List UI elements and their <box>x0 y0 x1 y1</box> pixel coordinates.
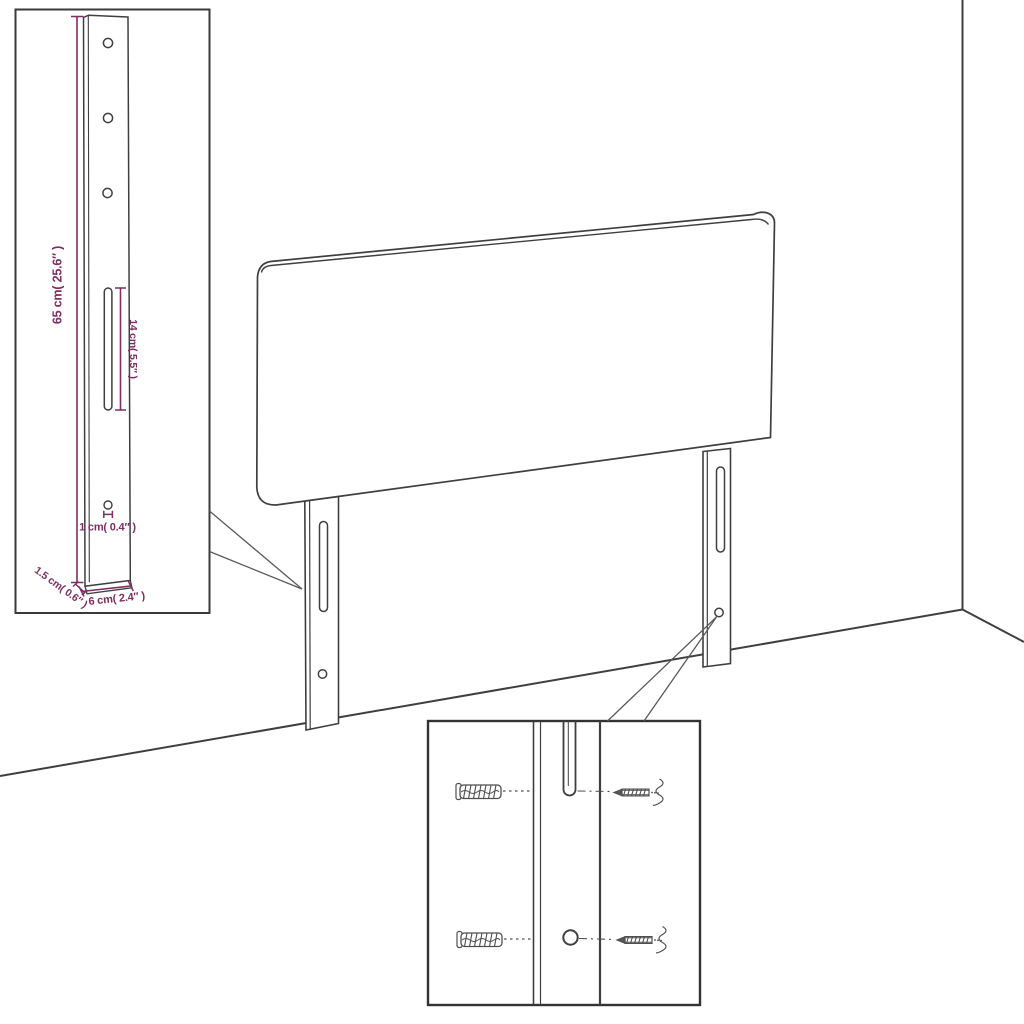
headboard-left-leg <box>305 497 339 731</box>
detail-inset-leg-dimensions: 65 cm( 25.6″ ) 14 cm( 5.5″ ) 1 cm( 0.4″ … <box>16 10 210 614</box>
detail-inset-mounting <box>428 721 700 1005</box>
dimension-label-slot: 14 cm( 5.5″ ) <box>127 319 139 379</box>
wall-plug-icon <box>456 784 501 800</box>
product-dimension-diagram: 65 cm( 25.6″ ) 14 cm( 5.5″ ) 1 cm( 0.4″ … <box>0 0 1024 1024</box>
diagram-canvas: 65 cm( 25.6″ ) 14 cm( 5.5″ ) 1 cm( 0.4″ … <box>0 0 1024 1024</box>
callout-line <box>644 617 717 721</box>
wall-plug-icon <box>457 932 502 948</box>
callout-line <box>210 552 303 590</box>
callout-line <box>210 511 303 589</box>
leg-screw-hole <box>318 670 326 678</box>
headboard-panel <box>257 212 775 505</box>
headboard <box>257 212 775 505</box>
leg-screw-hole <box>715 608 723 616</box>
headboard-right-leg <box>703 449 731 668</box>
callout-lines-left <box>210 511 303 589</box>
leg-edge-line <box>310 500 311 729</box>
floor-wall-line-right <box>963 610 1024 643</box>
dimension-label-hole: 1 cm( 0.4″ ) <box>79 522 136 534</box>
dimension-label-height: 65 cm( 25.6″ ) <box>51 246 65 324</box>
